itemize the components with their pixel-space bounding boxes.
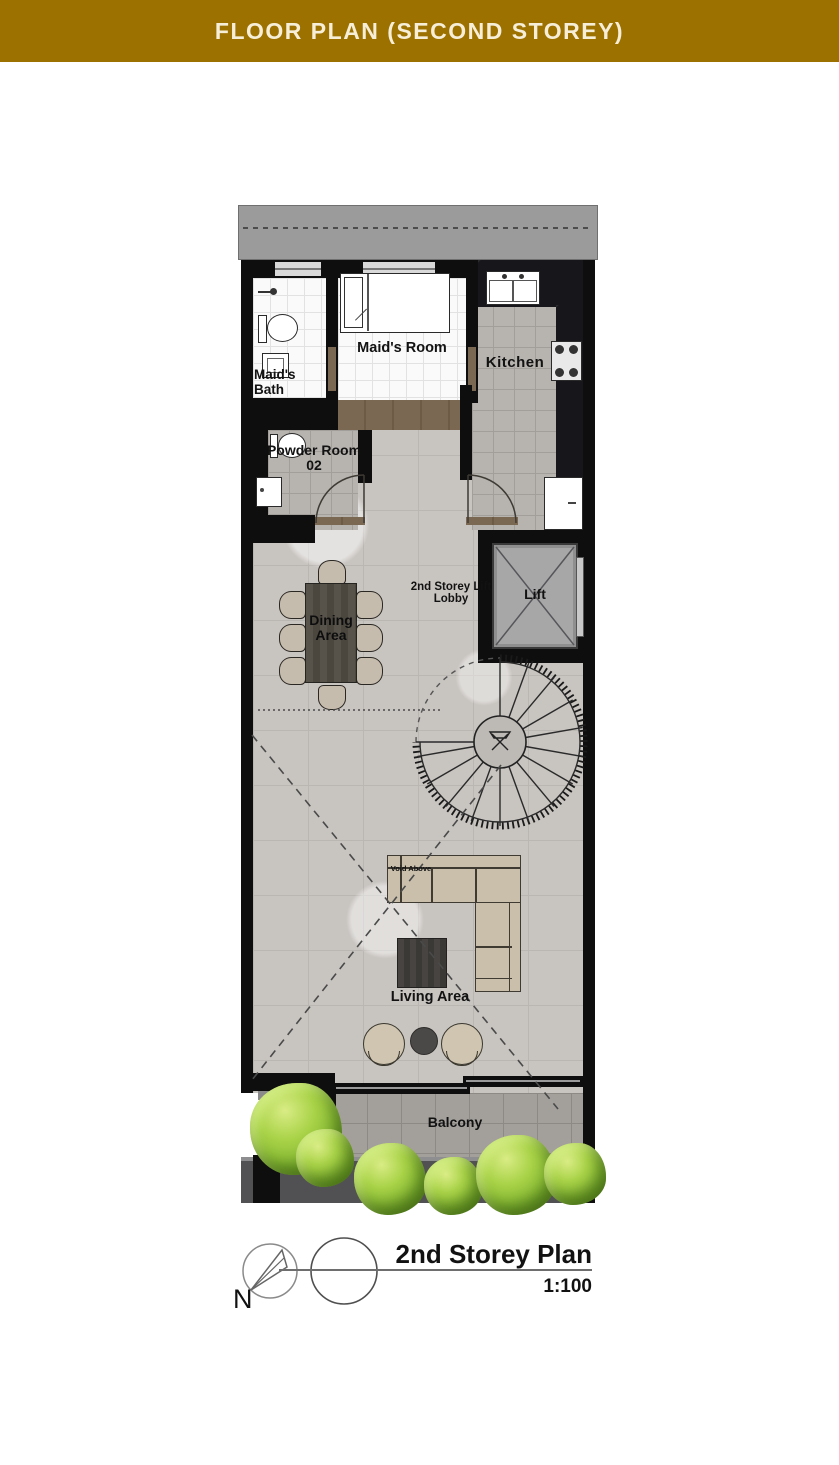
coffee-table — [397, 938, 447, 988]
dining-chair-bottom — [318, 685, 346, 710]
detail-circle-icon — [309, 1236, 379, 1306]
label-balcony: Balcony — [400, 1115, 510, 1130]
bath-lower-wall — [241, 398, 338, 430]
header-banner: FLOOR PLAN (SECOND STOREY) — [0, 0, 839, 62]
label-living-area: Living Area — [378, 990, 482, 1006]
armchair-left — [363, 1023, 405, 1065]
page-title: FLOOR PLAN (SECOND STOREY) — [215, 18, 624, 45]
bush-2 — [296, 1129, 354, 1187]
bush-3 — [354, 1143, 426, 1215]
label-kitchen: Kitchen — [472, 355, 558, 371]
label-void-above: Void Above — [390, 865, 432, 873]
left-wall — [241, 260, 253, 1093]
label-dining-area: Dining Area — [299, 613, 363, 643]
sliding-door-track-right — [466, 1080, 580, 1082]
setback-dashed-line — [243, 227, 593, 229]
bath-door — [328, 347, 336, 391]
page: { "header": { "title": "FLOOR PLAN (SECO… — [0, 0, 839, 1465]
fridge-icon — [544, 477, 583, 530]
dining-chair-left-3 — [279, 657, 306, 685]
label-lift: Lift — [492, 587, 578, 602]
plan-title: 2nd Storey Plan — [380, 1239, 592, 1270]
toilet-icon — [267, 314, 298, 342]
sofa-vertical — [475, 902, 521, 992]
roof-band — [238, 205, 598, 260]
window-bath — [275, 262, 321, 276]
powder-sink-icon — [256, 477, 282, 507]
label-lift-lobby: 2nd Storey Lift Lobby — [408, 581, 494, 606]
floor-plan: Maid's Bath Maid's Room Kitchen Powder R… — [238, 205, 598, 1215]
corridor-wood-floor — [338, 400, 466, 430]
powder-bottom-wall — [252, 515, 315, 543]
bush-6 — [544, 1143, 606, 1205]
label-maids-room: Maid's Room — [356, 341, 448, 357]
label-maids-bath: Maid's Bath — [254, 368, 314, 397]
north-label: N — [233, 1284, 253, 1315]
kitchen-sink-icon — [486, 271, 540, 305]
plan-scale: 1:100 — [380, 1276, 592, 1298]
sliding-door-track-left — [336, 1087, 467, 1089]
dining-chair-top — [318, 560, 346, 585]
label-powder-room: Powder Room 02 — [266, 443, 362, 473]
shower-head-icon — [270, 288, 277, 295]
kitchen-left-wall — [460, 385, 472, 480]
bed — [340, 273, 450, 333]
toilet-tank-icon — [258, 315, 267, 343]
powder-threshold — [315, 517, 365, 525]
armchair-right — [441, 1023, 483, 1065]
kitchen-threshold — [466, 517, 518, 525]
spiral-staircase-icon — [410, 652, 590, 832]
dining-chair-right-3 — [356, 657, 383, 685]
bush-4 — [424, 1157, 482, 1215]
side-table — [410, 1027, 438, 1055]
sofa-horizontal — [387, 855, 521, 903]
